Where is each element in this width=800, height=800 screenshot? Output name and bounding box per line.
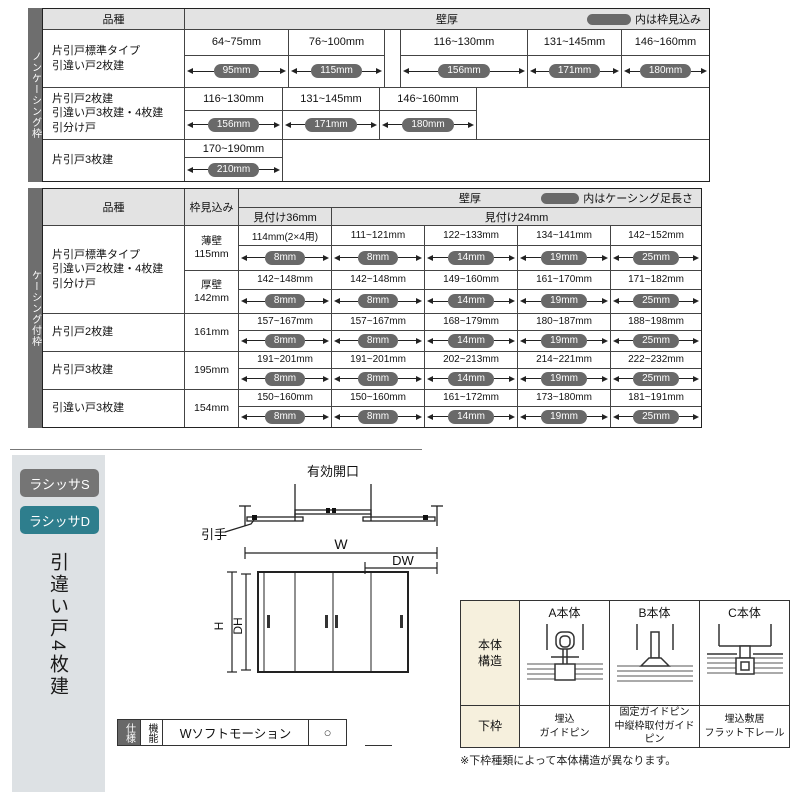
casing-leg-pill: 25mm <box>633 372 679 386</box>
body-structure-row-header: 本体 構造 <box>461 601 519 705</box>
lower-frame-row-header: 下枠 <box>461 705 519 747</box>
wall-range-cell: 173~180mm19mm <box>517 390 610 427</box>
dimension-arrow: 8mm <box>239 290 331 313</box>
wall-range-cell: 188~198mm25mm <box>610 314 701 351</box>
wall-note: 内は枠見込み <box>587 9 701 29</box>
badge-lasissa-s: ラシッサS <box>20 469 99 497</box>
note-pill-icon <box>541 193 579 204</box>
casing-leg-pill: 25mm <box>633 334 679 348</box>
casing-leg-pill: 8mm <box>358 410 398 424</box>
wall-range: 181~191mm <box>611 390 701 407</box>
dimension-arrow: 8mm <box>239 246 331 270</box>
door-diagram: 有効開口 引手 W DW H DH <box>175 460 455 715</box>
wall-range-cell: 161~170mm19mm <box>517 271 610 314</box>
arrow-right-icon <box>280 68 286 74</box>
noncasing-table: ノンケーシング枠 品種 壁厚 内は枠見込み 片引戸標準タイプ 引違い戸2枚建 6… <box>28 8 710 182</box>
casing-leg-pill: 14mm <box>448 334 494 348</box>
col-header-kind: 品種 <box>43 189 184 225</box>
col-header-facewidth-24: 見付け24mm <box>331 208 701 225</box>
dimension-arrow: 14mm <box>425 407 517 427</box>
casing-leg-pill: 25mm <box>633 251 679 265</box>
dimension-arrow: 19mm <box>518 246 610 270</box>
column-c-header: C本体 <box>728 604 761 620</box>
wall-range-cell: 157~167mm8mm <box>331 314 424 351</box>
frame-depth-pill: 180mm <box>640 64 691 78</box>
wall-range: 150~160mm <box>239 390 331 407</box>
arrow-right-icon <box>613 68 619 74</box>
label-h: H <box>212 622 226 631</box>
noncasing-side-tab: ノンケーシング枠 <box>28 8 42 182</box>
product-label: 片引戸標準タイプ 引違い戸2枚建 <box>43 30 184 87</box>
dimension-arrow: 14mm <box>425 290 517 313</box>
label-effective-opening: 有効開口 <box>307 464 359 479</box>
arrow-right-icon <box>376 68 382 74</box>
column-a-header: A本体 <box>548 604 580 620</box>
frame-depth-pill: 180mm <box>402 118 453 132</box>
col-header-jamb: 枠見込み <box>184 189 238 225</box>
product-row: 引違い戸3枚建 154mm 150~160mm8mm 150~160mm8mm … <box>43 389 701 427</box>
dimension-arrow: 8mm <box>332 369 424 389</box>
casing-leg-pill: 14mm <box>448 294 494 308</box>
wall-range: 111~121mm <box>332 226 424 246</box>
sub-row-thin-wall: 薄壁 115mm 114mm(2×4用)8mm 111~121mm8mm 122… <box>184 226 701 270</box>
wall-range: 170~190mm <box>185 140 282 158</box>
arrow-right-icon <box>416 255 422 261</box>
wall-range: 157~167mm <box>332 314 424 331</box>
casing-leg-pill: 8mm <box>358 334 398 348</box>
wall-note: 内はケーシング足長さ <box>541 189 693 207</box>
product-label: 片引戸2枚建 <box>43 314 184 351</box>
wall-range: 149~160mm <box>425 271 517 290</box>
arrow-right-icon <box>693 298 699 304</box>
dimension-arrow: 25mm <box>611 290 701 313</box>
casing-leg-pill: 25mm <box>633 294 679 308</box>
door-diagram-svg: 有効開口 引手 W DW H DH <box>175 460 455 710</box>
elevation-handles <box>267 615 403 628</box>
wall-range-cell: 142~148mm8mm <box>238 271 331 314</box>
product-label: 片引戸標準タイプ 引違い戸2枚建・4枚建 引分け戸 <box>43 226 184 313</box>
jamb-cell: 薄壁 115mm <box>184 226 238 270</box>
arrow-right-icon <box>323 376 329 382</box>
arrow-right-icon <box>509 298 515 304</box>
col-header-wall: 壁厚 内は枠見込み <box>184 9 709 29</box>
wall-range-cell: 122~133mm14mm <box>424 226 517 270</box>
spec-table-rule-extension <box>365 745 392 746</box>
wall-range-cell: 168~179mm14mm <box>424 314 517 351</box>
wall-range-cell: 64~75mm95mm <box>184 30 288 87</box>
dimension-arrow: 8mm <box>332 290 424 313</box>
casing-side-tab: ケーシング付枠 <box>28 188 42 428</box>
dimension-arrow: 8mm <box>239 407 331 427</box>
column-gap <box>384 30 400 87</box>
wall-range-cell: 116~130mm156mm <box>184 88 282 139</box>
wall-range-cell: 114mm(2×4用)8mm <box>238 226 331 270</box>
wall-range-cell: 191~201mm8mm <box>238 352 331 389</box>
arrow-right-icon <box>509 376 515 382</box>
wall-range-cell: 222~232mm25mm <box>610 352 701 389</box>
body-c-cell: C本体 <box>699 601 789 705</box>
frame-depth-pill: 156mm <box>438 64 489 78</box>
dimension-arrow: 8mm <box>332 246 424 270</box>
dimension-arrow: 115mm <box>289 56 384 87</box>
casing-leg-pill: 8mm <box>265 372 305 386</box>
arrow-right-icon <box>416 414 422 420</box>
casing-table: ケーシング付枠 品種 枠見込み 壁厚 内はケーシング足長さ 見付け36mm 見付… <box>28 188 702 428</box>
lower-frame-c: 埋込敷居 フラット下レール <box>699 705 789 747</box>
frame-depth-pill: 171mm <box>305 118 356 132</box>
jamb-cell: 厚壁 142mm <box>184 271 238 314</box>
arrow-right-icon <box>509 338 515 344</box>
dimension-arrow: 14mm <box>425 331 517 351</box>
wall-range: 173~180mm <box>518 390 610 407</box>
dimension-arrow: 14mm <box>425 246 517 270</box>
dimension-arrow: 25mm <box>611 369 701 389</box>
label-handle: 引手 <box>201 527 227 542</box>
dimension-arrow: 8mm <box>239 369 331 389</box>
label-dw: DW <box>392 553 414 568</box>
casing-table-header: 品種 枠見込み 壁厚 内はケーシング足長さ 見付け36mm 見付け24mm <box>43 189 701 225</box>
casing-leg-pill: 19mm <box>541 334 587 348</box>
dimension-arrow: 19mm <box>518 369 610 389</box>
empty-cell <box>282 140 709 181</box>
wall-range-cell: 142~148mm8mm <box>331 271 424 314</box>
arrow-right-icon <box>701 68 707 74</box>
casing-leg-pill: 8mm <box>265 251 305 265</box>
arrow-right-icon <box>323 298 329 304</box>
wall-range-cell: 171~182mm25mm <box>610 271 701 314</box>
wall-range: 161~172mm <box>425 390 517 407</box>
arrow-right-icon <box>509 414 515 420</box>
spec-sheet-page: ノンケーシング枠 品種 壁厚 内は枠見込み 片引戸標準タイプ 引違い戸2枚建 6… <box>0 0 800 800</box>
product-row: 片引戸標準タイプ 引違い戸2枚建 64~75mm95mm 76~100mm115… <box>43 29 709 87</box>
arrow-right-icon <box>416 376 422 382</box>
product-label: 片引戸3枚建 <box>43 140 184 181</box>
wall-range: 191~201mm <box>239 352 331 369</box>
col-header-wall: 壁厚 内はケーシング足長さ <box>238 189 701 207</box>
wall-range-cell: 181~191mm25mm <box>610 390 701 427</box>
guide-pin-a-diagram <box>523 620 607 698</box>
dimension-arrow: 171mm <box>283 111 379 139</box>
dimension-arrow: 19mm <box>518 290 610 313</box>
casing-leg-pill: 8mm <box>265 294 305 308</box>
product-row: 片引戸2枚建 161mm 157~167mm8mm 157~167mm8mm 1… <box>43 313 701 351</box>
arrow-right-icon <box>323 414 329 420</box>
product-row: 片引戸2枚建 引違い戸3枚建・4枚建 引分け戸 116~130mm156mm 1… <box>43 87 709 139</box>
product-row: 片引戸標準タイプ 引違い戸2枚建・4枚建 引分け戸 薄壁 115mm 114mm… <box>43 225 701 313</box>
wall-range: 168~179mm <box>425 314 517 331</box>
wall-range: 146~160mm <box>622 30 709 56</box>
dimension-arrow: 156mm <box>185 111 282 139</box>
wall-range: 134~141mm <box>518 226 610 246</box>
dimension-arrow: 180mm <box>622 56 709 87</box>
casing-leg-pill: 19mm <box>541 372 587 386</box>
wall-range-cell: 150~160mm8mm <box>331 390 424 427</box>
wall-range-cell: 146~160mm180mm <box>621 30 709 87</box>
badge-lasissa-d: ラシッサD <box>20 506 99 534</box>
product-row: 片引戸3枚建 170~190mm210mm <box>43 139 709 181</box>
lower-frame-b: 固定ガイドピン 中縦枠取付ガイドピン <box>609 705 699 747</box>
arrow-right-icon <box>323 338 329 344</box>
wall-range-cell: 131~145mm171mm <box>282 88 379 139</box>
jamb-cell: 154mm <box>184 390 238 427</box>
wall-range: 161~170mm <box>518 271 610 290</box>
footnote: ※下枠種類によって本体構造が異なります。 <box>460 752 676 768</box>
arrow-right-icon <box>274 167 280 173</box>
flat-rail-c-diagram <box>703 620 787 698</box>
wall-range-cell: 214~221mm19mm <box>517 352 610 389</box>
product-label: 引違い戸3枚建 <box>43 390 184 427</box>
casing-leg-pill: 8mm <box>358 372 398 386</box>
wall-range-cell: 170~190mm210mm <box>184 140 282 181</box>
wall-range: 202~213mm <box>425 352 517 369</box>
wall-range: 188~198mm <box>611 314 701 331</box>
col-header-facewidth-36: 見付け36mm <box>238 208 331 225</box>
wall-range: 191~201mm <box>332 352 424 369</box>
dimension-arrow: 180mm <box>380 111 476 139</box>
noncasing-table-header: 品種 壁厚 内は枠見込み <box>43 9 709 29</box>
dimension-arrow: 14mm <box>425 369 517 389</box>
wall-range-cell: 191~201mm8mm <box>331 352 424 389</box>
jamb-cell: 161mm <box>184 314 238 351</box>
wall-range-cell: 134~141mm19mm <box>517 226 610 270</box>
casing-leg-pill: 25mm <box>633 410 679 424</box>
wall-range: 146~160mm <box>380 88 476 111</box>
label-dh: DH <box>231 617 245 634</box>
spec-name-cell: Wソフトモーション <box>162 720 308 745</box>
wall-range-cell: 142~152mm25mm <box>610 226 701 270</box>
casing-leg-pill: 14mm <box>448 372 494 386</box>
arrow-right-icon <box>693 376 699 382</box>
col-header-kind: 品種 <box>43 9 184 29</box>
casing-leg-pill: 19mm <box>541 251 587 265</box>
label-w: W <box>334 536 348 552</box>
dimension-arrow: 8mm <box>239 331 331 351</box>
note-pill-icon <box>587 14 631 25</box>
product-label: 片引戸3枚建 <box>43 352 184 389</box>
arrow-right-icon <box>509 255 515 261</box>
dimension-arrow: 8mm <box>332 331 424 351</box>
spec-header-cell: 仕様 <box>118 720 140 745</box>
arrow-right-icon <box>602 298 608 304</box>
wall-range-cell: 149~160mm14mm <box>424 271 517 314</box>
frame-depth-pill: 156mm <box>208 118 259 132</box>
dimension-arrow: 8mm <box>332 407 424 427</box>
wall-range: 122~133mm <box>425 226 517 246</box>
arrow-right-icon <box>693 255 699 261</box>
wall-range-cell: 150~160mm8mm <box>238 390 331 427</box>
frame-depth-pill: 171mm <box>549 64 600 78</box>
body-a-cell: A本体 <box>519 601 609 705</box>
dimension-arrow: 19mm <box>518 331 610 351</box>
arrow-right-icon <box>416 338 422 344</box>
wall-range: 114mm(2×4用) <box>239 226 331 246</box>
column-b-header: B本体 <box>638 604 670 620</box>
arrow-right-icon <box>416 298 422 304</box>
dimension-arrow: 95mm <box>185 56 288 87</box>
frame-depth-pill: 115mm <box>311 64 362 78</box>
wall-range: 222~232mm <box>611 352 701 369</box>
wall-range: 142~152mm <box>611 226 701 246</box>
dimension-arrow: 25mm <box>611 331 701 351</box>
dimension-arrow: 171mm <box>528 56 621 87</box>
wall-range-cell: 161~172mm14mm <box>424 390 517 427</box>
arrow-right-icon <box>602 414 608 420</box>
arrow-right-icon <box>371 122 377 128</box>
arrow-right-icon <box>693 338 699 344</box>
wall-range-cell: 202~213mm14mm <box>424 352 517 389</box>
wall-range: 180~187mm <box>518 314 610 331</box>
wall-range-cell: 111~121mm8mm <box>331 226 424 270</box>
body-structure-table: 本体 構造 A本体 B本体 <box>460 600 790 748</box>
wall-range: 171~182mm <box>611 271 701 290</box>
wall-range: 116~130mm <box>401 30 527 56</box>
wall-range-cell: 116~130mm156mm <box>400 30 527 87</box>
casing-leg-pill: 14mm <box>448 410 494 424</box>
product-label: 片引戸2枚建 引違い戸3枚建・4枚建 引分け戸 <box>43 88 184 139</box>
lower-frame-a: 埋込 ガイドピン <box>519 705 609 747</box>
dimension-arrow: 210mm <box>185 158 282 181</box>
casing-leg-pill: 19mm <box>541 294 587 308</box>
spec-table: 仕様 機能 Wソフトモーション ○ <box>117 719 347 746</box>
wall-range-cell: 180~187mm19mm <box>517 314 610 351</box>
arrow-right-icon <box>468 122 474 128</box>
dimension-arrow: 156mm <box>401 56 527 87</box>
arrow-right-icon <box>693 414 699 420</box>
guide-pin-b-diagram <box>613 620 697 698</box>
wall-range: 142~148mm <box>239 271 331 290</box>
spec-value-cell: ○ <box>308 720 346 745</box>
wall-range-cell: 131~145mm171mm <box>527 30 621 87</box>
casing-leg-pill: 8mm <box>358 294 398 308</box>
arrow-right-icon <box>602 338 608 344</box>
wall-range-cell: 76~100mm115mm <box>288 30 384 87</box>
wall-range-cell: 146~160mm180mm <box>379 88 476 139</box>
arrow-right-icon <box>274 122 280 128</box>
casing-leg-pill: 19mm <box>541 410 587 424</box>
arrow-right-icon <box>323 255 329 261</box>
vertical-product-title: 引違い戸4枚建 <box>44 552 71 698</box>
sub-row-thick-wall: 厚壁 142mm 142~148mm8mm 142~148mm8mm 149~1… <box>184 270 701 314</box>
spec-function-cell: 機能 <box>140 720 162 745</box>
casing-leg-pill: 8mm <box>265 334 305 348</box>
casing-leg-pill: 14mm <box>448 251 494 265</box>
frame-depth-pill: 95mm <box>214 64 260 78</box>
jamb-cell: 195mm <box>184 352 238 389</box>
casing-leg-pill: 8mm <box>358 251 398 265</box>
wall-range: 131~145mm <box>283 88 379 111</box>
dimension-arrow: 25mm <box>611 246 701 270</box>
wall-range: 142~148mm <box>332 271 424 290</box>
wall-range: 157~167mm <box>239 314 331 331</box>
wall-range: 131~145mm <box>528 30 621 56</box>
casing-leg-pill: 8mm <box>265 410 305 424</box>
arrow-right-icon <box>602 376 608 382</box>
wall-range: 116~130mm <box>185 88 282 111</box>
wall-range: 150~160mm <box>332 390 424 407</box>
wall-range: 64~75mm <box>185 30 288 56</box>
dimension-arrow: 19mm <box>518 407 610 427</box>
empty-cell <box>476 88 709 139</box>
body-b-cell: B本体 <box>609 601 699 705</box>
frame-depth-pill: 210mm <box>208 163 259 177</box>
wall-range-cell: 157~167mm8mm <box>238 314 331 351</box>
section-divider <box>10 449 422 450</box>
wall-range: 214~221mm <box>518 352 610 369</box>
dimension-arrow: 25mm <box>611 407 701 427</box>
arrow-right-icon <box>519 68 525 74</box>
product-row: 片引戸3枚建 195mm 191~201mm8mm 191~201mm8mm 2… <box>43 351 701 389</box>
wall-range: 76~100mm <box>289 30 384 56</box>
arrow-right-icon <box>602 255 608 261</box>
